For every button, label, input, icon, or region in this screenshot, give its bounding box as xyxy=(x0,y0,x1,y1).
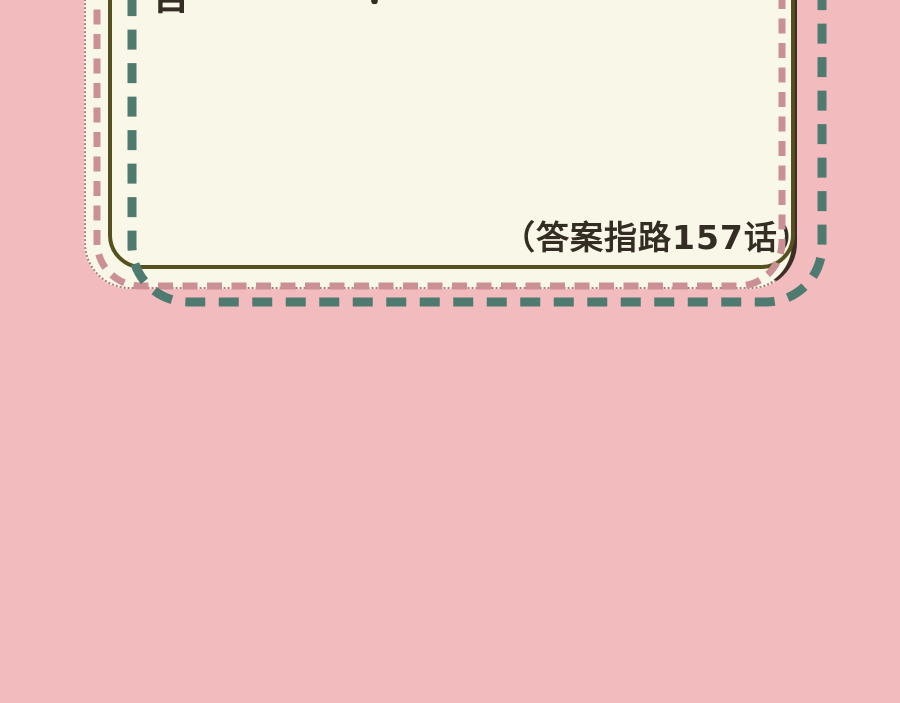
answer-reference-text: （答案指路157话） xyxy=(502,211,812,259)
cutoff-exclamation-mark: ！ xyxy=(364,0,406,10)
comic-panel-background: 答 ！ （答案指路157话） xyxy=(0,0,900,703)
cutoff-question-character: 答 xyxy=(150,0,192,16)
